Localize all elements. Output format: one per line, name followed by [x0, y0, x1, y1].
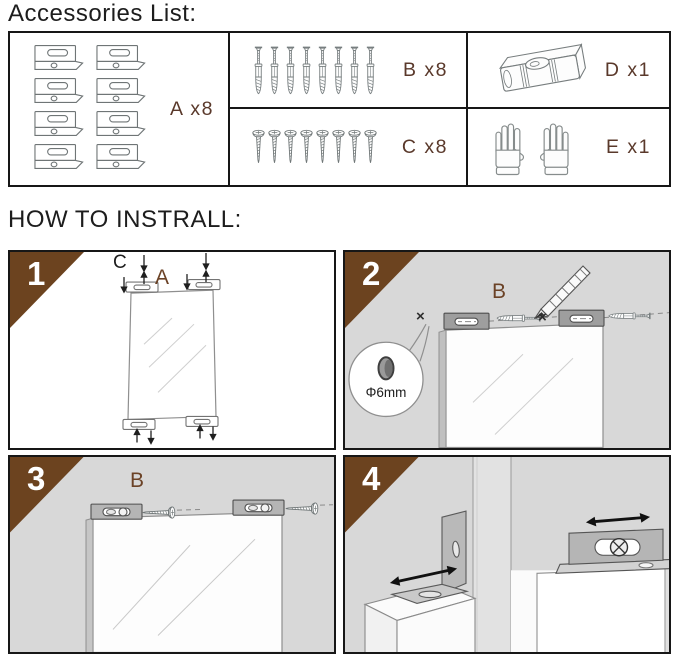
wall-corner	[473, 457, 511, 653]
label-screw-c: C	[113, 253, 127, 272]
mirror-front-view	[511, 567, 669, 652]
screw-icon	[252, 129, 265, 165]
accessory-label-b: B x8	[403, 59, 448, 82]
bracket-icon	[94, 143, 146, 170]
screw-icon	[316, 129, 329, 165]
screw-icon	[284, 129, 297, 165]
wall-anchor-icon	[268, 46, 281, 95]
screw-set	[252, 129, 377, 165]
wall-anchor-icon	[252, 46, 265, 95]
step-4-illustration	[345, 457, 669, 653]
bracket-icon	[94, 110, 146, 137]
wall-anchor-icon	[609, 313, 650, 319]
spirit-level-icon	[492, 41, 587, 100]
anchor-set	[252, 46, 377, 95]
accessory-cell-e: E x1	[468, 109, 669, 185]
bracket-icon	[32, 143, 84, 170]
wall-anchor-icon	[497, 315, 540, 322]
install-steps: 1 C A	[8, 250, 671, 654]
instruction-sheet: Accessories List: A x8	[0, 0, 679, 657]
screw-icon	[300, 129, 313, 165]
label-bracket-a: A	[155, 267, 169, 288]
mirror	[439, 323, 603, 447]
hole-callout	[349, 324, 429, 416]
bracket-3d	[392, 511, 467, 603]
hole-diameter-note: Φ6mm	[355, 386, 417, 400]
drill-mark-right: ×	[538, 310, 547, 325]
step-1-illustration	[10, 252, 334, 448]
bracket-icon	[32, 110, 84, 137]
accessory-cell-d: D x1	[468, 33, 669, 109]
wall-anchor-icon	[332, 46, 345, 95]
screw-icon	[332, 129, 345, 165]
step-4-panel: 4	[343, 455, 671, 655]
accessory-label-a: A x8	[170, 98, 214, 121]
screw-icon	[364, 129, 377, 165]
accessory-label-e: E x1	[606, 136, 651, 159]
accessory-cell-c: C x8	[230, 109, 468, 185]
wall-anchor-icon	[284, 46, 297, 95]
screw-icon	[348, 129, 361, 165]
gloves-icon	[492, 116, 572, 179]
screw-icon	[268, 129, 281, 165]
mirror	[128, 290, 216, 419]
accessories-table: A x8 B x8 D x1	[8, 31, 671, 187]
mirror	[86, 512, 282, 652]
step-number: 4	[362, 460, 380, 498]
bracket-icon	[32, 44, 84, 71]
screw-icon	[286, 502, 318, 513]
accessories-title: Accessories List:	[8, 0, 197, 28]
label-screw-b: B	[130, 470, 144, 491]
install-title: HOW TO INSTRALL:	[8, 206, 242, 234]
step-number: 3	[27, 460, 45, 498]
accessory-label-c: C x8	[402, 136, 448, 159]
wall-anchor-icon	[364, 46, 377, 95]
accessory-label-d: D x1	[605, 59, 651, 82]
bracket-icon	[32, 77, 84, 104]
bracket-front	[556, 529, 669, 573]
accessory-cell-a: A x8	[10, 33, 230, 185]
step-3-panel: 3 B	[8, 455, 336, 655]
step-2-illustration	[345, 252, 669, 448]
step-2-panel: 2 B × × Φ6mm	[343, 250, 671, 450]
accessory-cell-b: B x8	[230, 33, 468, 109]
step-3-illustration	[10, 457, 334, 653]
step-number: 2	[362, 255, 380, 293]
drill-mark-left: ×	[416, 309, 425, 324]
bracket-icon	[94, 77, 146, 104]
label-anchor-b: B	[492, 281, 506, 302]
slide-arrow-right	[587, 513, 649, 525]
wall-anchor-icon	[316, 46, 329, 95]
step-1-panel: 1 C A	[8, 250, 336, 450]
bracket-set	[32, 44, 146, 174]
wall-anchor-icon	[300, 46, 313, 95]
bracket-icon	[94, 44, 146, 71]
wall-anchor-icon	[348, 46, 361, 95]
step-number: 1	[27, 255, 45, 293]
